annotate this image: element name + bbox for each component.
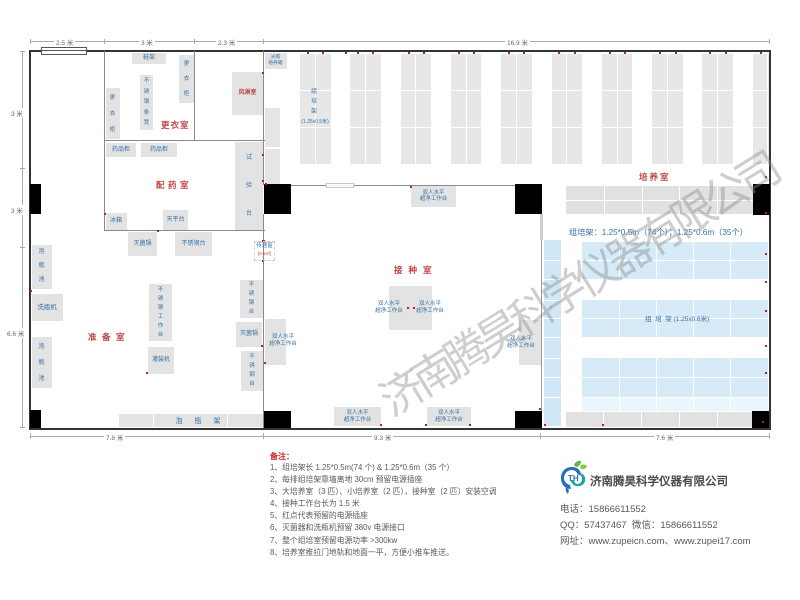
svg-text:TH: TH — [568, 474, 579, 483]
